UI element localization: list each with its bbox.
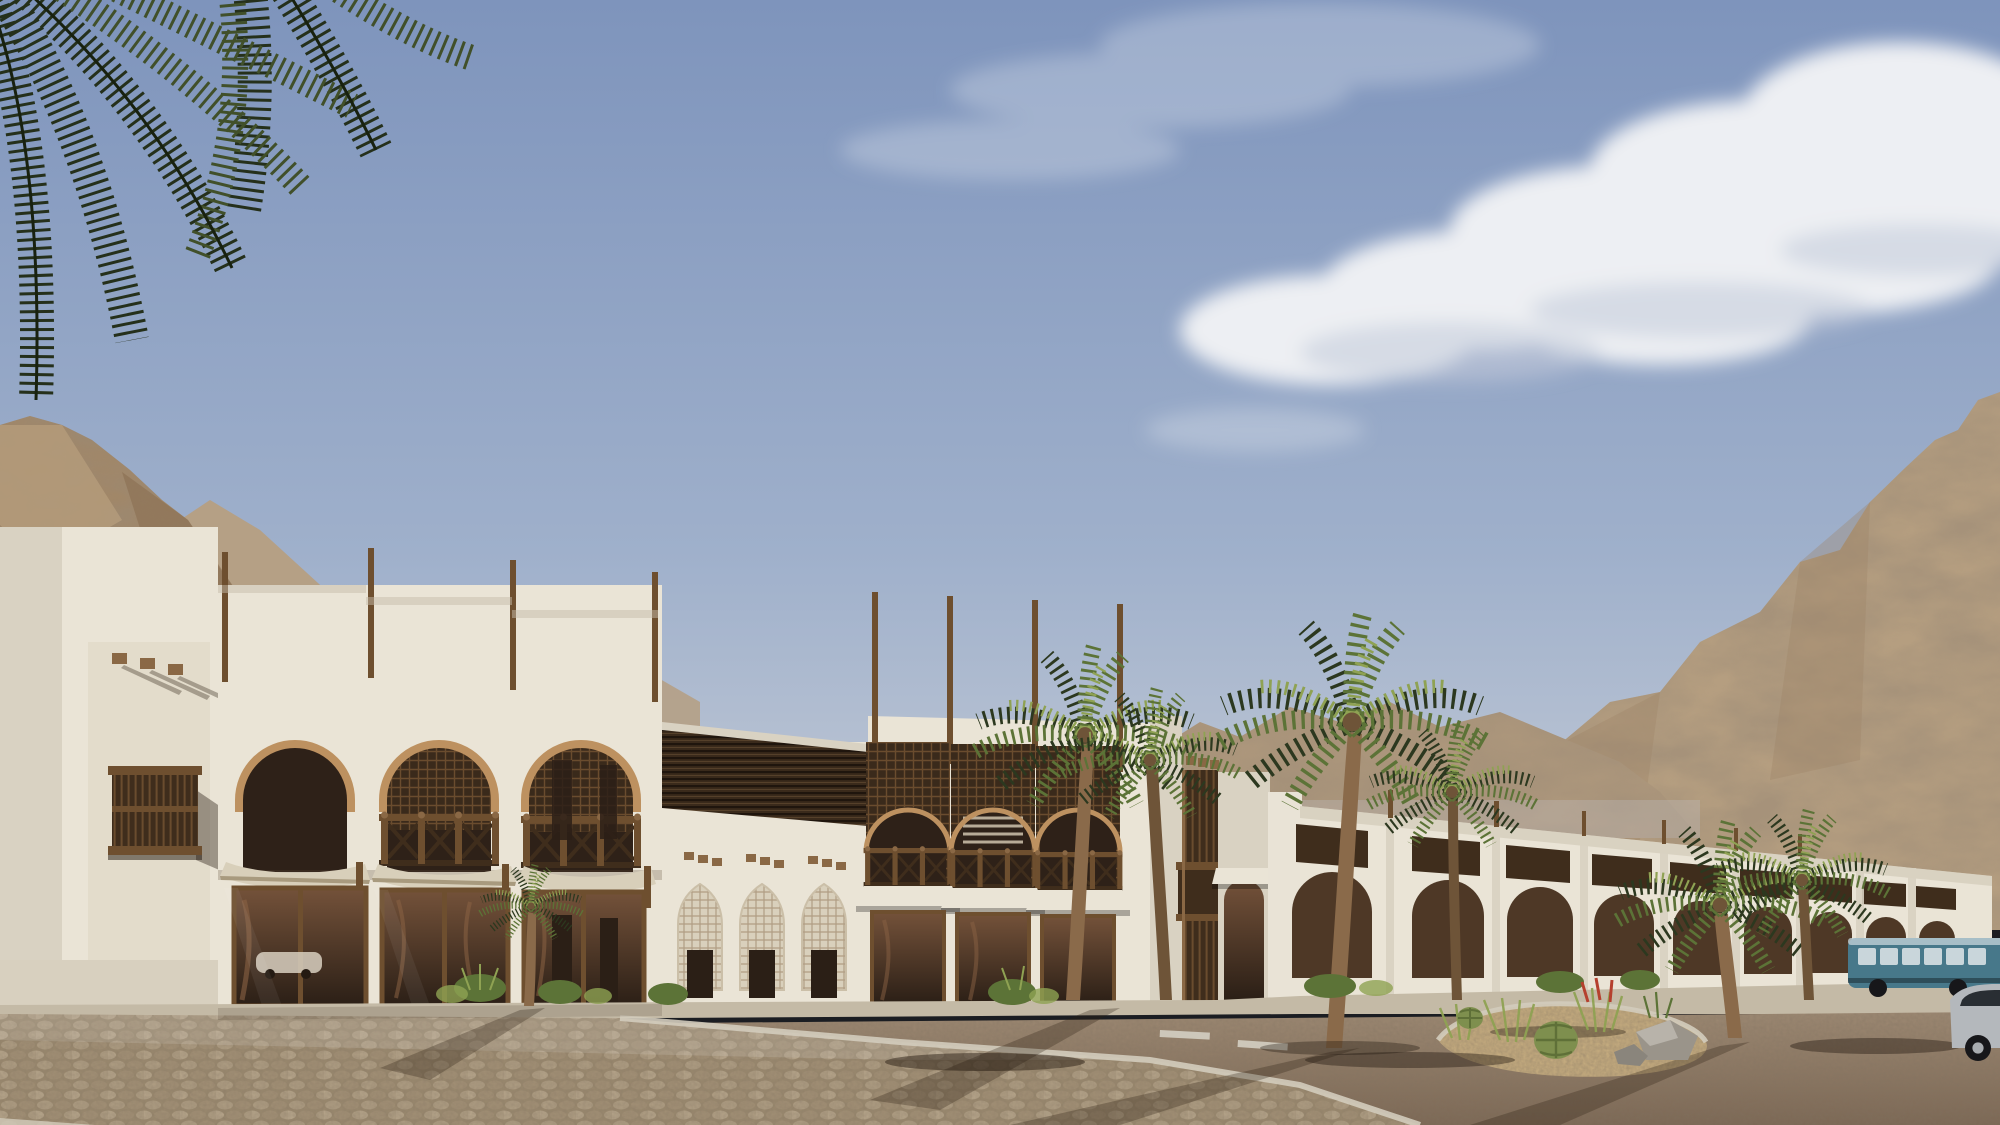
corner-door-bay	[1212, 772, 1276, 1002]
rendering-stage	[0, 0, 2000, 1125]
tower-block	[0, 527, 252, 1013]
arch-bay-2	[379, 743, 499, 872]
arch-bay-3	[521, 743, 641, 872]
storefront-glass-left	[224, 888, 644, 1006]
architectural-rendering	[0, 0, 2000, 1125]
